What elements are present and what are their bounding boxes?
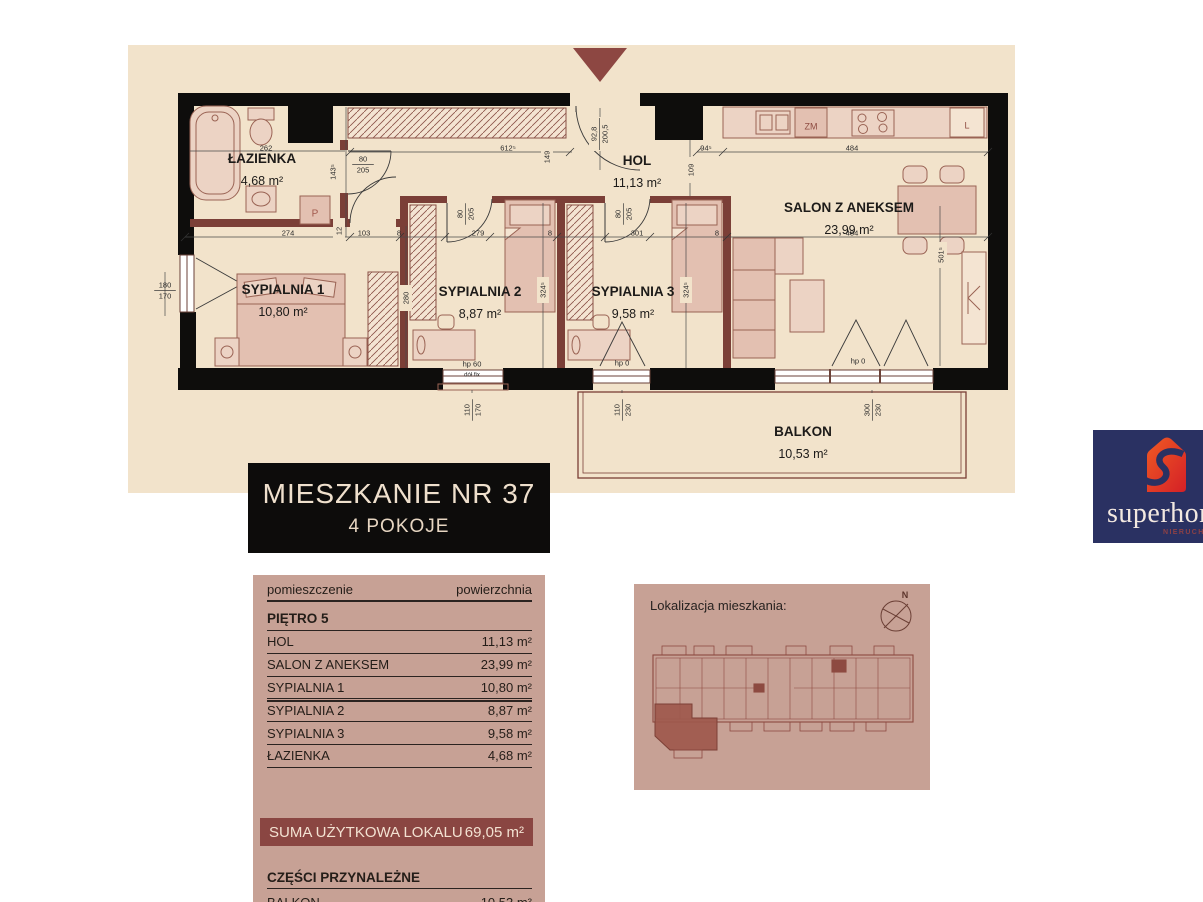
svg-text:10,80 m²: 10,80 m² [258, 305, 307, 319]
svg-text:205: 205 [357, 166, 370, 175]
room-area: 10,53 m² [481, 895, 532, 902]
svg-text:P: P [312, 209, 319, 220]
svg-text:N: N [902, 590, 909, 600]
total-area-label: SUMA UŻYTKOWA LOKALU [269, 824, 463, 841]
room-name: SYPIALNIA 1 [267, 680, 344, 695]
col-area-header: powierzchnia [456, 582, 532, 598]
svg-text:484: 484 [846, 144, 859, 153]
svg-text:ZM: ZM [805, 122, 818, 132]
room-area: 4,68 m² [488, 748, 532, 763]
table-row: SYPIALNIA 39,58 m² [267, 722, 532, 745]
dimension-label: 8 [397, 229, 401, 238]
dimension-label: 300230 [862, 393, 883, 427]
toilet [248, 108, 274, 120]
svg-text:110: 110 [613, 404, 622, 416]
svg-text:ŁAZIENKA: ŁAZIENKA [228, 151, 296, 166]
dimension-label: 484 [846, 229, 859, 238]
dimension-label: hp 0 [851, 357, 866, 366]
desk-3 [568, 315, 630, 360]
svg-text:180: 180 [159, 281, 172, 290]
room-area: 23,99 m² [481, 657, 532, 672]
room-label: HOL11,13 m² [613, 153, 661, 190]
svg-text:12: 12 [335, 227, 344, 235]
dimension-label: 180170 [154, 281, 176, 301]
svg-text:dół fix: dół fix [464, 373, 480, 379]
entrance-arrow [573, 48, 627, 82]
svg-text:10,53 m²: 10,53 m² [778, 447, 827, 461]
svg-text:92,8: 92,8 [590, 127, 599, 142]
kitchen-counter [723, 107, 987, 138]
dimension-label: 301 [631, 229, 644, 238]
svg-text:205: 205 [467, 208, 476, 221]
svg-text:301: 301 [631, 229, 644, 238]
dimension-label: 92,8200,5 [589, 117, 610, 151]
rooms-count: 4 POKOJE [349, 516, 450, 538]
table-row: SALON Z ANEKSEM23,99 m² [267, 654, 532, 677]
dimension-label: 501⁵ [935, 242, 947, 268]
annex-header: CZĘŚCI PRZYNALEŻNE [267, 870, 420, 885]
svg-text:170: 170 [159, 292, 172, 301]
dimension-label: 324⁵ [537, 277, 549, 303]
brand-name: superhome [1107, 498, 1203, 529]
flat-card-page: ŁAZIENKA4,68 m²HOL11,13 m²SALON Z ANEKSE… [0, 0, 1203, 902]
svg-text:11,13 m²: 11,13 m² [613, 176, 661, 190]
dimension-label: 109 [685, 157, 697, 183]
svg-text:262: 262 [260, 144, 273, 153]
svg-text:4,68 m²: 4,68 m² [241, 174, 283, 188]
svg-text:612⁵: 612⁵ [500, 144, 516, 153]
svg-text:279: 279 [472, 229, 485, 238]
svg-text:200,5: 200,5 [601, 125, 610, 144]
svg-text:484: 484 [846, 229, 859, 238]
col-room-header: pomieszczenie [267, 582, 353, 598]
total-area-value: 69,05 m² [465, 824, 524, 841]
dimension-label: hp 60 [463, 360, 482, 369]
table-row: SYPIALNIA 28,87 m² [267, 699, 532, 722]
svg-text:280: 280 [402, 292, 411, 305]
dimension-label: 12 [333, 218, 345, 244]
house-icon [1145, 438, 1186, 493]
dimension-label: 103 [358, 229, 371, 238]
svg-text:8,87 m²: 8,87 m² [459, 307, 501, 321]
apartment-number: MIESZKANIE NR 37 [263, 478, 536, 510]
svg-text:80: 80 [359, 155, 367, 164]
coffee-table [790, 280, 824, 332]
svg-text:143⁵: 143⁵ [329, 164, 338, 180]
svg-text:103: 103 [358, 229, 371, 238]
dimension-label: dół fix [464, 373, 480, 379]
room-area: 9,58 m² [488, 726, 532, 741]
dimension-label: 484 [846, 144, 859, 153]
title-card: MIESZKANIE NR 37 4 POKOJE [248, 463, 550, 553]
svg-text:9,58 m²: 9,58 m² [612, 307, 654, 321]
svg-text:SALON Z ANEKSEM: SALON Z ANEKSEM [784, 200, 914, 215]
dimension-label: 80205 [352, 155, 374, 175]
svg-text:324⁵: 324⁵ [539, 282, 548, 298]
single-bed-3 [672, 200, 722, 312]
dimension-label: 8 [548, 229, 552, 238]
dimension-label: 279 [472, 229, 485, 238]
table-header: pomieszczenie powierzchnia [267, 575, 532, 598]
dimension-label: 280 [400, 285, 412, 311]
dimension-label: ZM [805, 122, 818, 132]
room-area: 11,13 m² [482, 634, 532, 649]
svg-text:501⁵: 501⁵ [937, 247, 946, 263]
svg-text:110: 110 [463, 404, 472, 416]
annex-rows: BALKON10,53 m² [267, 891, 532, 902]
compass: N [881, 590, 911, 631]
highlighted-unit [655, 704, 717, 758]
floor-plan: ŁAZIENKA4,68 m²HOL11,13 m²SALON Z ANEKSE… [0, 0, 1203, 902]
area-table-panel: pomieszczenie powierzchnia PIĘTRO 5 HOL1… [253, 575, 545, 902]
location-panel: Lokalizacja mieszkania: N [634, 584, 930, 790]
dimension-label: 149 [541, 144, 553, 170]
room-area: 8,87 m² [488, 703, 532, 718]
building-plan: N [634, 584, 930, 790]
svg-text:230: 230 [874, 404, 883, 417]
brand-logo: superhome NIERUCHOMOŚCI [1093, 430, 1203, 543]
room-name: SYPIALNIA 3 [267, 726, 344, 741]
svg-text:8: 8 [548, 229, 552, 238]
table-row: ŁAZIENKA4,68 m² [267, 745, 532, 768]
room-rows: HOL11,13 m²SALON Z ANEKSEM23,99 m²SYPIAL… [267, 631, 532, 768]
svg-text:274: 274 [282, 229, 295, 238]
room-name: SYPIALNIA 2 [267, 703, 344, 718]
svg-text:hp 0: hp 0 [615, 359, 630, 368]
total-area-bar: SUMA UŻYTKOWA LOKALU 69,05 m² [260, 818, 533, 846]
svg-text:hp 60: hp 60 [463, 360, 482, 369]
dimension-label: 612⁵ [500, 144, 516, 153]
svg-text:8: 8 [715, 229, 719, 238]
svg-text:80: 80 [614, 210, 623, 218]
dimension-label: 110230 [612, 393, 633, 427]
floor-label: PIĘTRO 5 [267, 602, 532, 627]
room-name: HOL [267, 634, 294, 649]
svg-text:hp 0: hp 0 [851, 357, 866, 366]
svg-text:170: 170 [474, 404, 483, 417]
syp2-wardrobe [410, 205, 436, 320]
svg-text:324⁵: 324⁵ [682, 282, 691, 298]
tv-unit [962, 252, 986, 344]
balcony-outline [578, 392, 966, 478]
dimension-label: 274 [282, 229, 295, 238]
dimension-label: 94⁵ [700, 144, 711, 153]
brand-subtitle: NIERUCHOMOŚCI [1163, 527, 1203, 536]
dimension-label: 324⁵ [680, 277, 692, 303]
room-area: 10,80 m² [481, 680, 532, 695]
svg-text:94⁵: 94⁵ [700, 144, 711, 153]
room-name: BALKON [267, 895, 320, 902]
svg-text:L: L [964, 121, 969, 131]
dimension-label: 262 [260, 144, 273, 153]
svg-text:SYPIALNIA 3: SYPIALNIA 3 [592, 284, 675, 299]
hol-wardrobe [348, 108, 566, 138]
room-label: BALKON10,53 m² [774, 424, 832, 461]
dimension-label: P [312, 209, 319, 220]
svg-text:230: 230 [624, 404, 633, 417]
washbasin [246, 186, 276, 212]
svg-text:SYPIALNIA 1: SYPIALNIA 1 [242, 282, 325, 297]
table-row: HOL11,13 m² [267, 631, 532, 654]
desk-2 [413, 315, 475, 360]
syp3-wardrobe [567, 205, 593, 320]
dimension-label: 143⁵ [327, 159, 339, 185]
room-name: SALON Z ANEKSEM [267, 657, 389, 672]
dimension-label: 80205 [455, 197, 476, 231]
svg-text:205: 205 [625, 208, 634, 221]
location-label: Lokalizacja mieszkania: [650, 598, 787, 613]
dimension-label: hp 0 [615, 359, 630, 368]
dimension-label: 80205 [613, 197, 634, 231]
table-row: BALKON10,53 m² [267, 891, 532, 902]
svg-text:SYPIALNIA 2: SYPIALNIA 2 [439, 284, 522, 299]
dimension-label: L [964, 121, 969, 131]
svg-text:8: 8 [397, 229, 401, 238]
svg-text:109: 109 [687, 164, 696, 177]
svg-text:80: 80 [456, 210, 465, 218]
syp1-wardrobe [368, 272, 398, 366]
room-name: ŁAZIENKA [267, 748, 330, 763]
dimension-label: 8 [715, 229, 719, 238]
svg-text:BALKON: BALKON [774, 424, 832, 439]
table-row: SYPIALNIA 110,80 m² [267, 677, 532, 700]
svg-text:149: 149 [543, 151, 552, 164]
dimension-label: 110170 [462, 393, 483, 427]
svg-text:300: 300 [863, 404, 872, 417]
svg-text:HOL: HOL [623, 153, 652, 168]
